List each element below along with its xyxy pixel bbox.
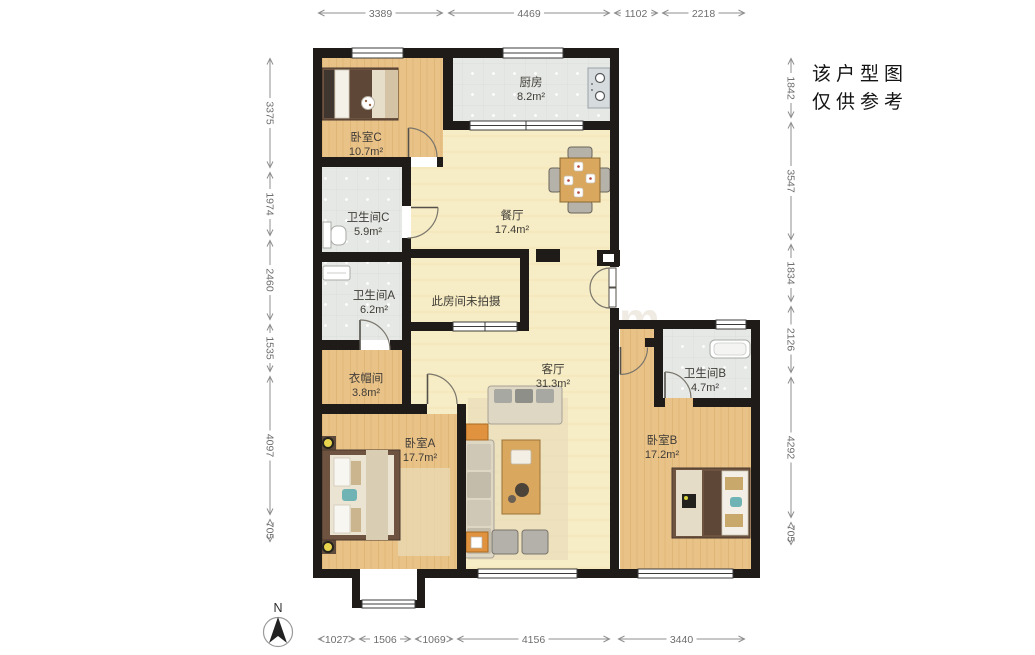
room-label-kitchen: 厨房 bbox=[520, 76, 543, 89]
bed-edge bbox=[385, 70, 398, 118]
room-label-bathroom-c: 卫生间C bbox=[347, 210, 390, 224]
sofa-cushion bbox=[536, 389, 554, 403]
toilet-bowl bbox=[331, 226, 346, 245]
tub-inner bbox=[714, 343, 746, 355]
dim-value: 1842 bbox=[785, 76, 797, 100]
window bbox=[716, 320, 746, 329]
dim-value: 2460 bbox=[264, 268, 276, 292]
decor-dot bbox=[369, 104, 371, 106]
chair bbox=[568, 201, 592, 213]
ottoman bbox=[522, 530, 548, 554]
pillow bbox=[334, 458, 350, 486]
room-area-cloakroom: 3.8m² bbox=[352, 387, 380, 399]
dim-value: 4292 bbox=[785, 436, 797, 460]
compass-label: N bbox=[273, 601, 282, 615]
bolster bbox=[725, 514, 743, 527]
lamp bbox=[323, 438, 333, 448]
dim-value: 1027 bbox=[325, 634, 349, 646]
table-decor bbox=[508, 495, 516, 503]
dimension: 705 bbox=[785, 522, 797, 545]
floor-plan-svg: lianjia.com bbox=[0, 0, 1035, 655]
dim-value: 3375 bbox=[264, 101, 276, 125]
dimensions-bottom: 1027 1506 1069 4156 3440 bbox=[318, 634, 745, 646]
chair bbox=[568, 147, 592, 159]
sofa-cushion bbox=[467, 472, 491, 498]
room-area-bedroom-c: 10.7m² bbox=[349, 146, 384, 158]
dim-value: 1102 bbox=[625, 8, 648, 20]
blanket bbox=[704, 471, 722, 535]
papers bbox=[471, 537, 482, 548]
kitchen-sliding-door bbox=[470, 121, 583, 130]
dim-value: 2218 bbox=[692, 8, 716, 20]
room-label-dining: 餐厅 bbox=[501, 208, 524, 222]
dim-value: 4097 bbox=[264, 434, 276, 458]
dim-value: 1834 bbox=[785, 261, 797, 285]
room-label-bedroom-b: 卧室B bbox=[647, 433, 678, 447]
floor-plan-page: lianjia.com bbox=[0, 0, 1035, 655]
pillows bbox=[335, 70, 349, 118]
sofa-cushion bbox=[467, 444, 491, 470]
room-label-bathroom-a: 卫生间A bbox=[353, 288, 395, 302]
dim-value: 4156 bbox=[522, 634, 546, 646]
tray bbox=[511, 450, 531, 464]
disclaimer-line-2: 仅供参考 bbox=[812, 91, 908, 113]
entry-door-leaf bbox=[609, 268, 616, 287]
remote-dot bbox=[684, 496, 688, 500]
room-area-kitchen: 8.2m² bbox=[517, 91, 545, 103]
bolster bbox=[351, 461, 361, 485]
disclaimer-line-1: 该户型图 bbox=[812, 63, 908, 85]
food-dot bbox=[577, 191, 580, 194]
entry-column-core bbox=[603, 254, 614, 262]
sink-icon bbox=[323, 266, 350, 280]
room-area-bathroom-a: 6.2m² bbox=[360, 304, 388, 316]
room-label-bathroom-b: 卫生间B bbox=[684, 366, 726, 380]
bathtub-icon bbox=[710, 340, 750, 358]
room-label-bedroom-c: 卧室C bbox=[350, 130, 381, 144]
window bbox=[352, 48, 403, 58]
dim-value: 1506 bbox=[373, 634, 397, 646]
bay-window bbox=[362, 600, 415, 608]
room-label-unphotographed: 此房间未拍摄 bbox=[432, 294, 501, 308]
dim-value: 1069 bbox=[422, 634, 446, 646]
window bbox=[638, 569, 733, 578]
ottoman bbox=[492, 530, 518, 554]
room-area-bedroom-a: 17.7m² bbox=[403, 452, 438, 464]
room-area-living: 31.3m² bbox=[536, 378, 571, 390]
food-dot bbox=[589, 177, 592, 180]
burner bbox=[596, 74, 605, 83]
bed-icon-bedroom-b bbox=[672, 468, 750, 538]
dim-value: 705 bbox=[785, 525, 797, 543]
food-dot bbox=[577, 165, 580, 168]
dim-value: 3547 bbox=[785, 169, 797, 193]
room-label-living: 客厅 bbox=[542, 362, 565, 376]
accent-pillow bbox=[730, 497, 742, 507]
room-area-bedroom-b: 17.2m² bbox=[645, 449, 680, 461]
bed-runner bbox=[372, 70, 385, 118]
burner bbox=[596, 92, 605, 101]
room-area-dining: 17.4m² bbox=[495, 224, 530, 236]
bed-icon-bedroom-c bbox=[322, 68, 398, 120]
dim-value: 3440 bbox=[670, 634, 694, 646]
bay-window-floor bbox=[360, 578, 417, 600]
toilet-tank bbox=[323, 222, 331, 248]
decor-plate bbox=[362, 97, 375, 110]
lamp bbox=[323, 542, 333, 552]
bolster bbox=[725, 477, 743, 490]
dim-value: 705 bbox=[264, 522, 276, 540]
dim-value: 3389 bbox=[369, 8, 393, 20]
room-label-bedroom-a: 卧室A bbox=[405, 436, 436, 450]
table-decor bbox=[515, 483, 529, 497]
dim-value: 1974 bbox=[264, 192, 276, 216]
knob bbox=[591, 83, 593, 85]
stove-icon bbox=[588, 68, 610, 108]
dim-value: 1535 bbox=[264, 336, 276, 360]
bolster bbox=[351, 508, 361, 532]
room-area-bathroom-b: 4.7m² bbox=[691, 382, 719, 394]
chair bbox=[549, 168, 561, 192]
food-dot bbox=[567, 179, 570, 182]
rug bbox=[398, 468, 450, 556]
room-label-cloakroom: 衣帽间 bbox=[349, 371, 384, 385]
window bbox=[503, 48, 563, 58]
decor-dot bbox=[365, 100, 367, 102]
room-opening bbox=[453, 322, 517, 331]
bed-runner bbox=[366, 450, 388, 540]
accent-pillow bbox=[342, 489, 357, 501]
sofa-cushion bbox=[494, 389, 512, 403]
window bbox=[478, 569, 577, 578]
kitchen-floor bbox=[453, 58, 610, 121]
remote bbox=[682, 494, 696, 508]
sofa-set-icon bbox=[464, 386, 568, 560]
dim-value: 4469 bbox=[517, 8, 541, 20]
sofa-cushion bbox=[467, 500, 491, 526]
headboard bbox=[324, 70, 334, 118]
entry-door-leaf bbox=[609, 288, 616, 307]
blanket bbox=[350, 70, 372, 118]
sofa-cushion bbox=[515, 389, 533, 403]
dim-value: 2126 bbox=[785, 328, 797, 352]
knob bbox=[591, 89, 593, 91]
pillow bbox=[334, 505, 350, 533]
dimension: 705 bbox=[264, 519, 276, 542]
room-area-bathroom-c: 5.9m² bbox=[354, 226, 382, 238]
side-table bbox=[466, 424, 488, 440]
